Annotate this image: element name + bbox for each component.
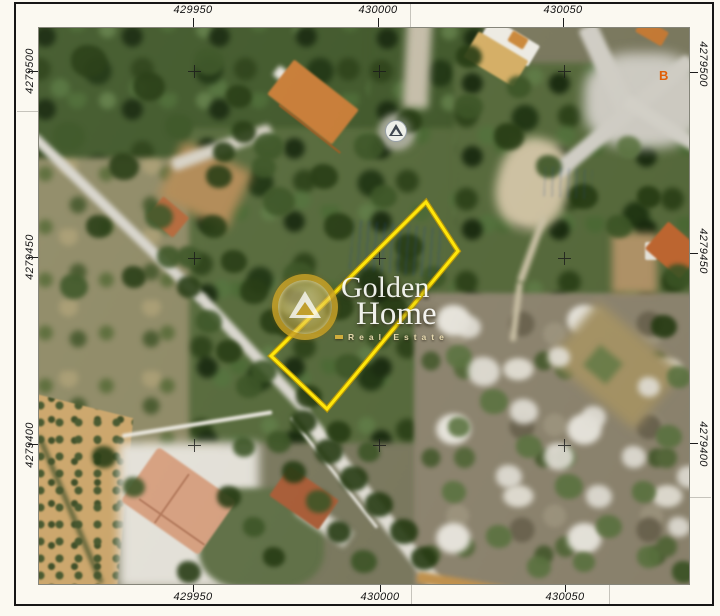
label-point-b: B (659, 68, 668, 83)
watermark-title-line2: Home (356, 296, 437, 333)
survey-marker-icon (385, 120, 407, 142)
watermark-subtitle: Real Estate (348, 332, 449, 342)
map-sheet: 429950 430000 430050 429950 430000 43005… (0, 0, 720, 616)
watermark-bullet (335, 335, 343, 339)
aerial-photo: Golden Home Real Estate B (38, 27, 690, 585)
watermark-logo-icon (272, 274, 338, 340)
survey-triangle-inner-icon (392, 129, 400, 135)
logo-inner-triangle-icon (296, 302, 314, 315)
watermark: Golden Home Real Estate (39, 28, 689, 584)
